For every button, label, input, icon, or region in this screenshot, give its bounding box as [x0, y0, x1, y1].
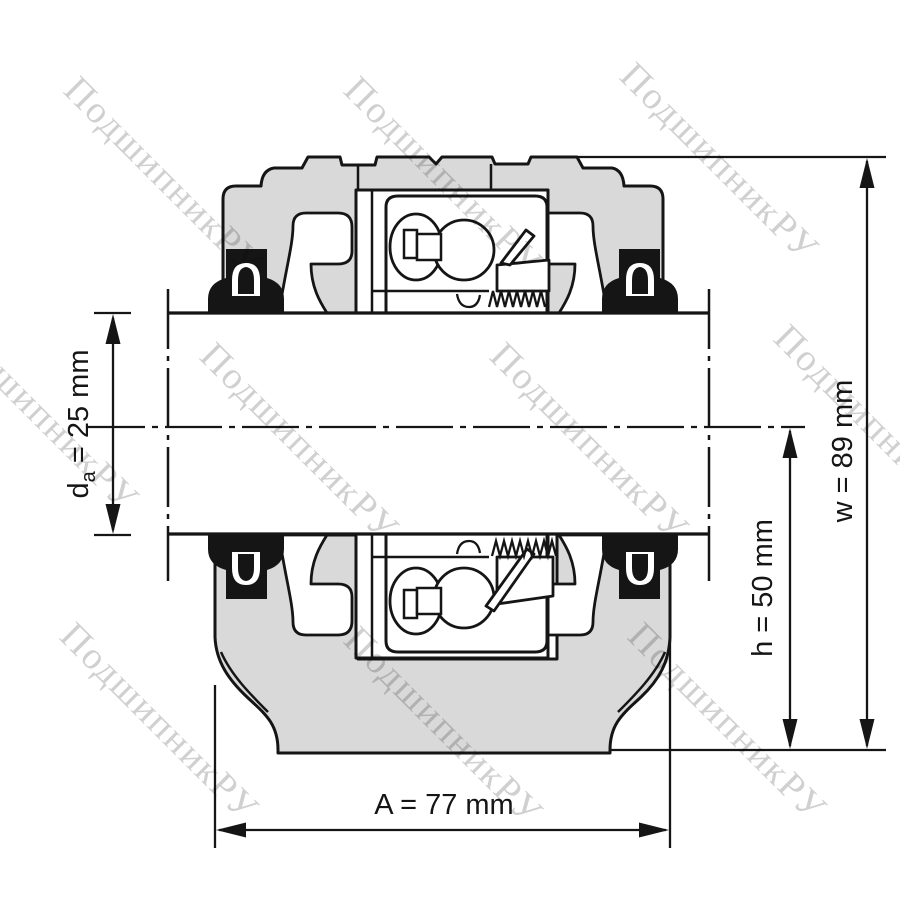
bearing-housing-cross-section: da = 25 mm h = 50 mm w = 89 mm A = 77 mm…: [0, 0, 900, 900]
cage-segment-2: [417, 234, 441, 260]
seal-right-core: [632, 267, 648, 294]
cage-segment-1: [404, 230, 417, 258]
dimension-h-label: h = 50 mm: [747, 519, 779, 657]
bearing-drawing-page: da = 25 mm h = 50 mm w = 89 mm A = 77 mm…: [0, 0, 900, 900]
